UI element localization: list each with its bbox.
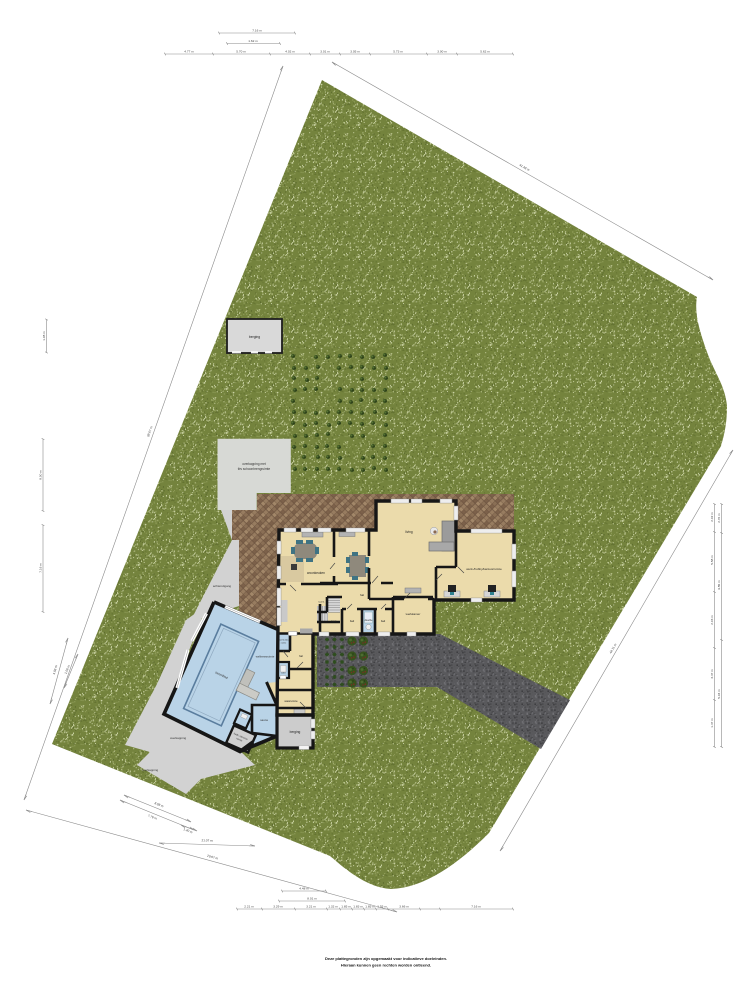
svg-text:1.85 m: 1.85 m	[341, 905, 351, 909]
svg-text:hal: hal	[299, 654, 303, 658]
svg-text:zwemb./dou: zwemb./dou	[278, 640, 289, 642]
svg-text:3.01 m: 3.01 m	[320, 50, 330, 54]
svg-text:4.48 m: 4.48 m	[299, 887, 309, 891]
svg-text:overkapping: overkapping	[170, 736, 187, 740]
svg-text:hal: hal	[360, 593, 364, 597]
svg-text:Deze plattegronden zijn opgema: Deze plattegronden zijn opgemaakt voor i…	[325, 956, 447, 961]
svg-text:living: living	[405, 530, 412, 534]
svg-text:1.62 m: 1.62 m	[248, 39, 258, 43]
svg-text:2.03 m: 2.03 m	[710, 615, 714, 625]
svg-text:woonkeuken: woonkeuken	[307, 571, 325, 575]
svg-text:3.66 m: 3.66 m	[399, 905, 409, 909]
svg-text:wasruimte: wasruimte	[284, 699, 298, 703]
svg-text:1.32 m: 1.32 m	[328, 905, 338, 909]
svg-text:9.55 m: 9.55 m	[717, 580, 721, 590]
svg-text:5.73 m: 5.73 m	[393, 50, 403, 54]
svg-text:3.21 m: 3.21 m	[306, 905, 316, 909]
svg-text:5.03 m: 5.03 m	[717, 689, 721, 699]
svg-text:2.02 m: 2.02 m	[710, 512, 714, 522]
svg-text:5.58 m: 5.58 m	[710, 555, 714, 565]
svg-text:1.85 m: 1.85 m	[365, 905, 375, 909]
svg-text:21.07 m: 21.07 m	[201, 838, 213, 842]
svg-text:achteruitgang: achteruitgang	[213, 584, 232, 588]
svg-text:sauna: sauna	[260, 718, 268, 722]
svg-text:berging: berging	[249, 335, 260, 339]
svg-text:bad: bad	[381, 619, 386, 623]
svg-text:overkapping: overkapping	[142, 768, 159, 772]
svg-text:kast: kast	[332, 619, 337, 623]
svg-text:douche: douche	[365, 619, 374, 622]
svg-text:8.00 m: 8.00 m	[39, 470, 43, 480]
svg-text:5.62 m: 5.62 m	[480, 50, 490, 54]
svg-text:wellnessruimte: wellnessruimte	[256, 655, 275, 659]
svg-text:7.16 m: 7.16 m	[252, 29, 262, 33]
svg-text:ruimte: ruimte	[281, 642, 287, 645]
svg-text:kast/tr.: kast/tr.	[318, 601, 325, 604]
svg-text:2.21 m: 2.21 m	[244, 905, 254, 909]
svg-text:3.00 m: 3.00 m	[437, 50, 447, 54]
svg-text:overkapping met: overkapping met	[242, 462, 266, 466]
svg-text:4.02 m: 4.02 m	[285, 50, 295, 54]
svg-text:3.05 m: 3.05 m	[350, 50, 360, 54]
svg-text:1.55 m: 1.55 m	[377, 905, 387, 909]
svg-text:bad: bad	[350, 619, 355, 623]
svg-text:7.16 m: 7.16 m	[471, 905, 481, 909]
svg-text:tbv schoonbrengruimte: tbv schoonbrengruimte	[238, 467, 271, 471]
svg-text:3.47 m: 3.47 m	[710, 669, 714, 679]
svg-text:1.47 m: 1.47 m	[710, 718, 714, 728]
svg-text:7.16 m: 7.16 m	[39, 563, 43, 573]
svg-text:toilet: toilet	[281, 672, 286, 675]
svg-text:8.01 m: 8.01 m	[307, 897, 317, 901]
svg-text:berging: berging	[290, 730, 301, 734]
svg-text:1.08 m: 1.08 m	[42, 331, 46, 341]
svg-text:Hieraan kunnen geen rechten wo: Hieraan kunnen geen rechten worden ontle…	[341, 963, 431, 968]
svg-text:1.83 m: 1.83 m	[353, 905, 363, 909]
svg-text:3.29 m: 3.29 m	[273, 905, 283, 909]
svg-text:5.70 m: 5.70 m	[236, 50, 246, 54]
svg-text:2.76 m: 2.76 m	[717, 513, 721, 523]
svg-text:werkkamer: werkkamer	[406, 612, 421, 616]
svg-text:werk-/hobby/kantoorruimte: werk-/hobby/kantoorruimte	[466, 567, 502, 571]
svg-text:4.77 m: 4.77 m	[184, 50, 194, 54]
